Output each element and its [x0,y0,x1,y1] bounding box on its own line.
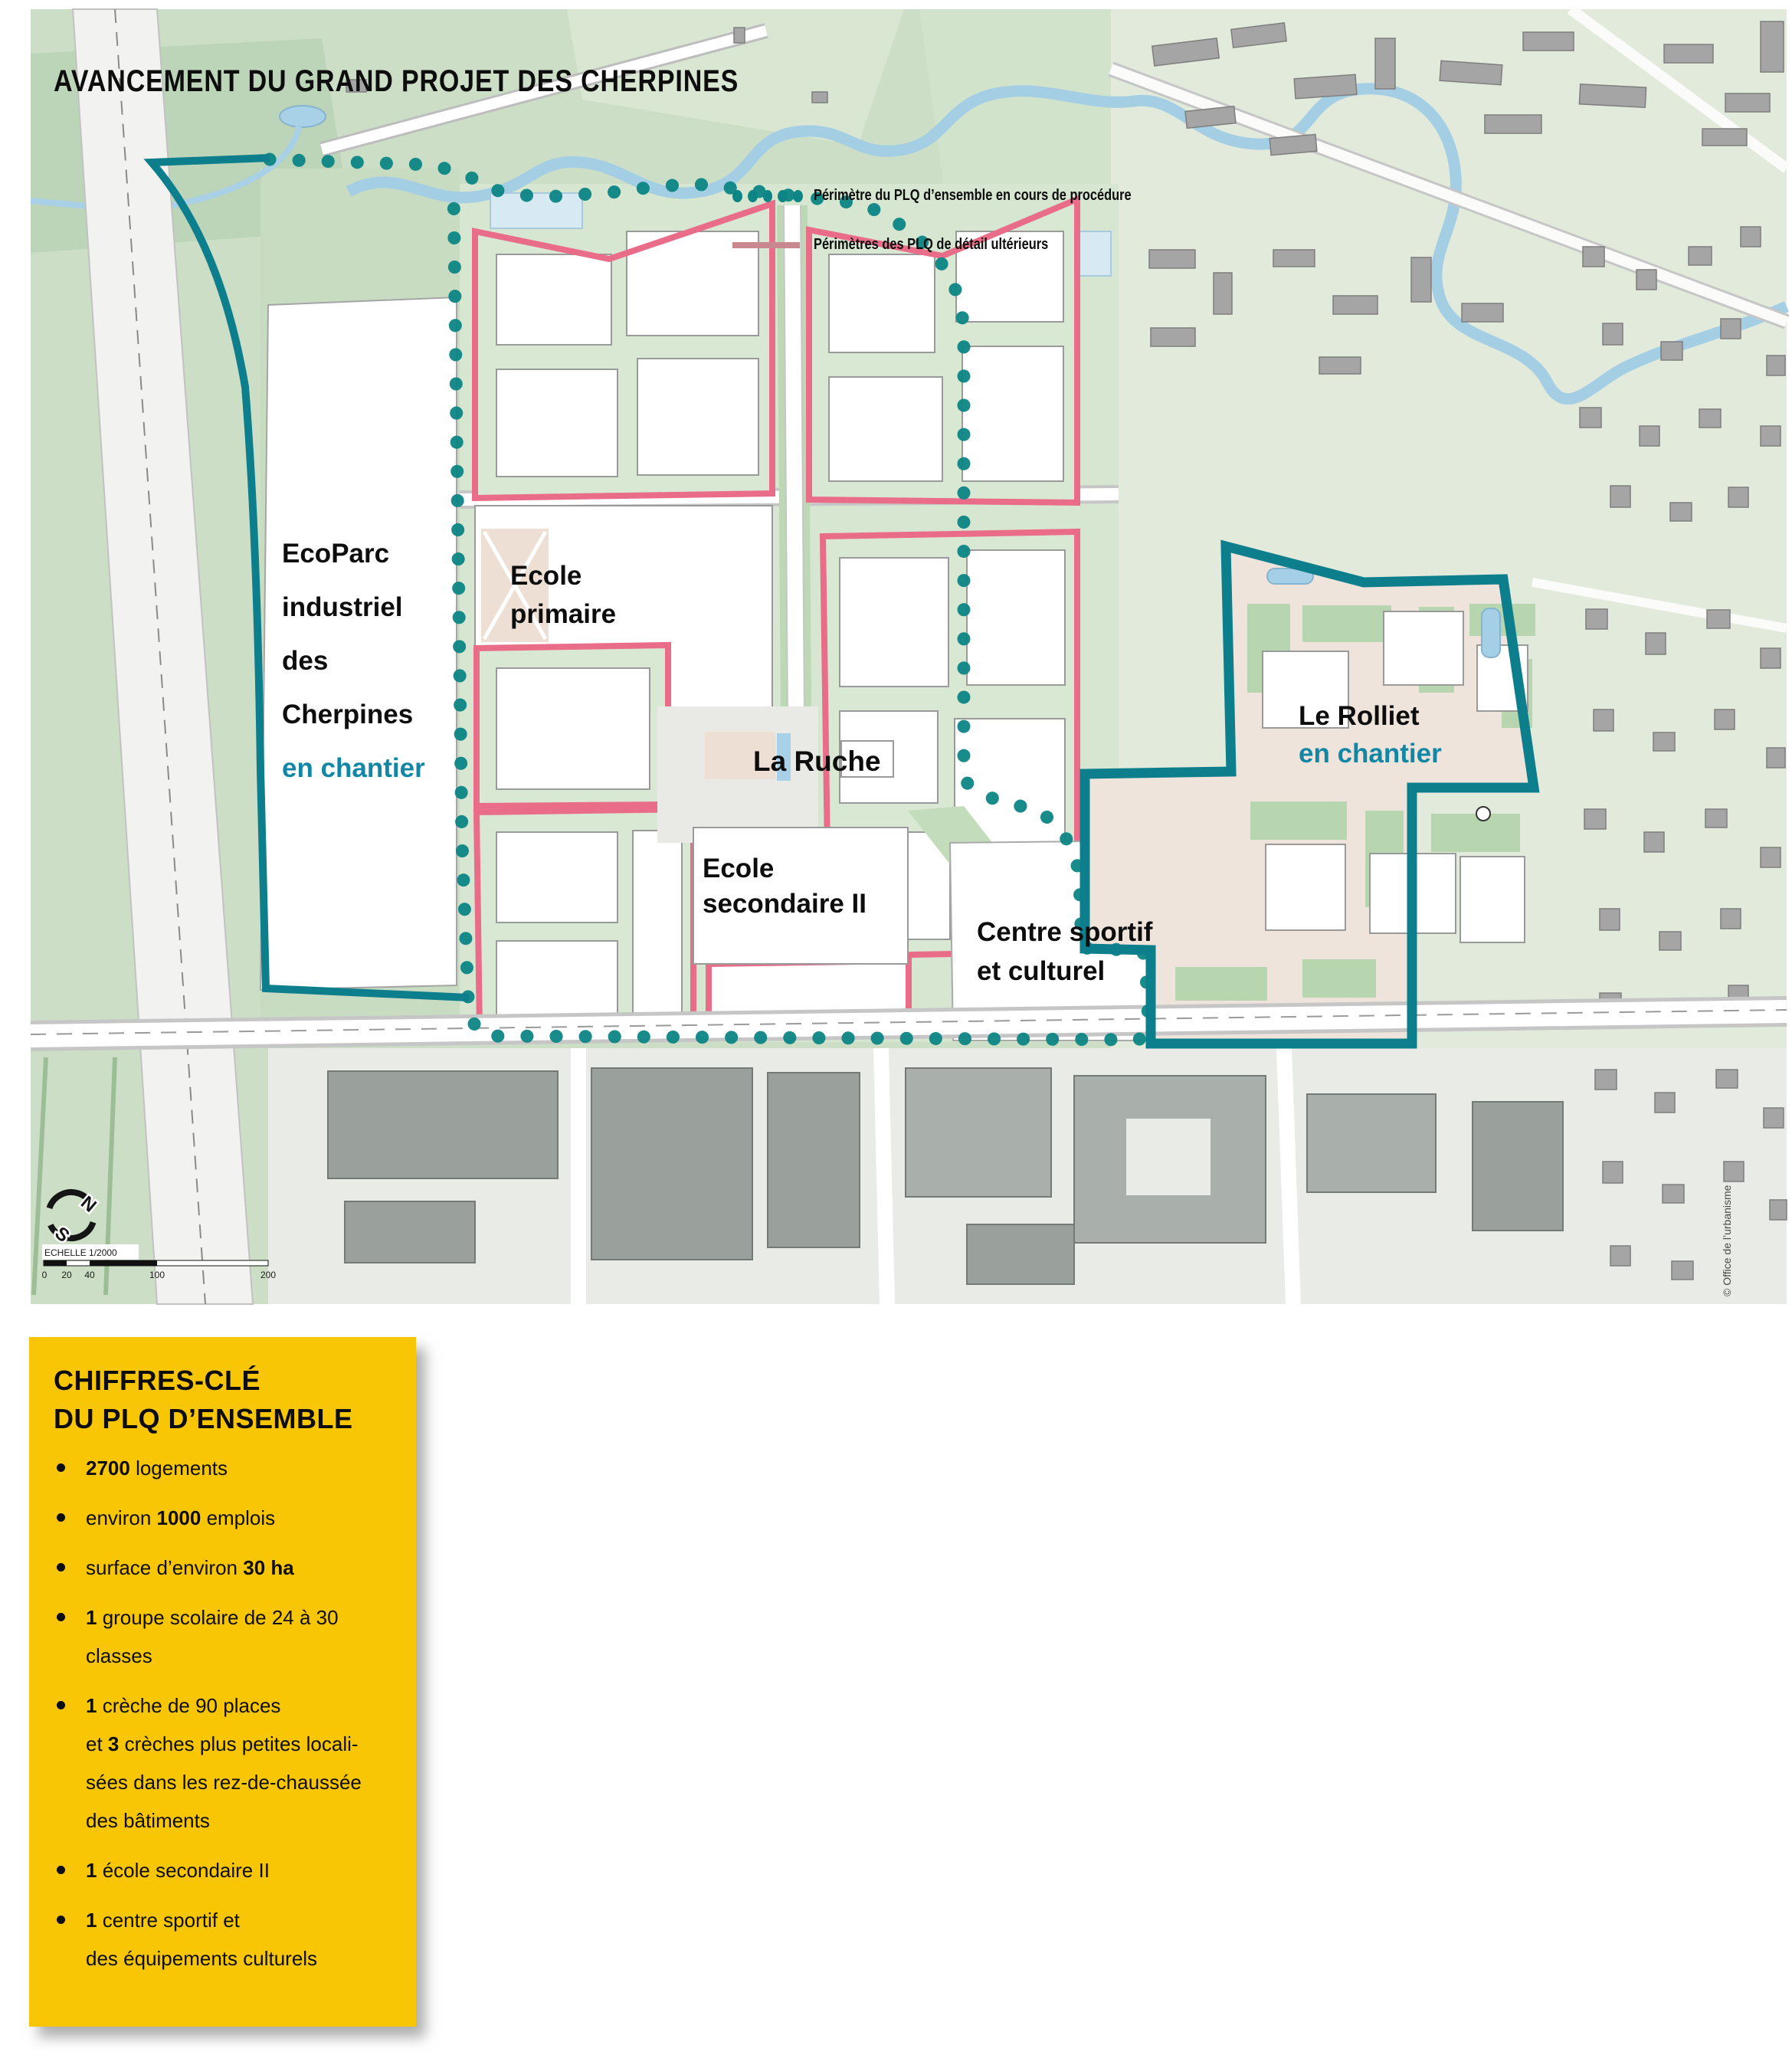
label-ecoparc-line: Cherpines [282,688,425,742]
label-rolliet-name: Le Rolliet [1299,697,1442,735]
infobox-list: 2700 logementsenviron 1000 emploissurfac… [54,1449,398,1978]
infobox: CHIFFRES-CLÉ DU PLQ D’ENSEMBLE 2700 loge… [29,1337,416,2027]
label-centre-sportif-line: et culturel [977,952,1152,991]
scale-tick: 0 [42,1270,48,1280]
label-ecoparc-line: des [282,634,425,688]
infobox-item: 2700 logements [54,1449,398,1487]
scale-tick: 40 [84,1270,95,1280]
legend-item-detail: Périmètres des PLQ de détail ultérieurs [732,236,1099,254]
label-ecole-secondaire-line: Ecole [703,851,867,887]
infobox-item: 1 groupe scolaire de 24 à 30 classes [54,1598,398,1675]
page: N S ECHELLE 1/2000 0 20 40 100 200 AVANC… [0,0,1792,2068]
label-ecole-primaire-line: primaire [510,595,616,634]
label-la-ruche: La Ruche [753,746,881,778]
legend-ensemble-label: Périmètre du PLQ d’ensemble en cours de … [814,187,1132,205]
solid-line-swatch [732,242,800,248]
dotted-line-swatch [732,190,803,202]
map: N S ECHELLE 1/2000 0 20 40 100 200 AVANC… [0,0,1792,1306]
label-ecoparc-line: industriel [282,581,425,634]
infobox-item: 1 crèche de 90 places et 3 crèches plus … [54,1686,398,1840]
legend-item-ensemble: Périmètre du PLQ d’ensemble en cours de … [732,187,1201,205]
label-ecoparc-status: en chantier [282,742,425,795]
infobox-item: 1 centre sportif et des équipements cult… [54,1901,398,1978]
credit-text: © Office de l’urbanisme [1721,1185,1733,1296]
infobox-item: surface d’environ 30 ha [54,1549,398,1587]
label-ecole-primaire-line: Ecole [510,557,616,595]
map-title: AVANCEMENT DU GRAND PROJET DES CHERPINES [54,64,739,99]
infobox-item: environ 1000 emplois [54,1499,398,1537]
infobox-title-line2: DU PLQ D’ENSEMBLE [54,1400,398,1438]
legend-detail-label: Périmètres des PLQ de détail ultérieurs [814,236,1048,254]
scale-tick: 20 [61,1270,72,1280]
label-ecole-secondaire-line: secondaire II [703,887,867,922]
label-ecoparc: EcoParc industriel des Cherpines en chan… [282,527,425,795]
label-centre-sportif-line: Centre sportif [977,913,1152,952]
label-rolliet: Le Rolliet en chantier [1299,697,1442,772]
scale-label: ECHELLE 1/2000 [44,1247,117,1258]
scale-tick: 100 [149,1270,165,1280]
scale-tick: 200 [260,1270,276,1280]
label-centre-sportif: Centre sportif et culturel [977,913,1152,991]
label-ecole-secondaire: Ecole secondaire II [703,851,867,922]
label-ecoparc-line: EcoParc [282,527,425,581]
infobox-title-line1: CHIFFRES-CLÉ [54,1362,398,1400]
label-ecole-primaire: Ecole primaire [510,557,616,634]
infobox-item: 1 école secondaire II [54,1851,398,1889]
label-rolliet-status: en chantier [1299,735,1442,772]
